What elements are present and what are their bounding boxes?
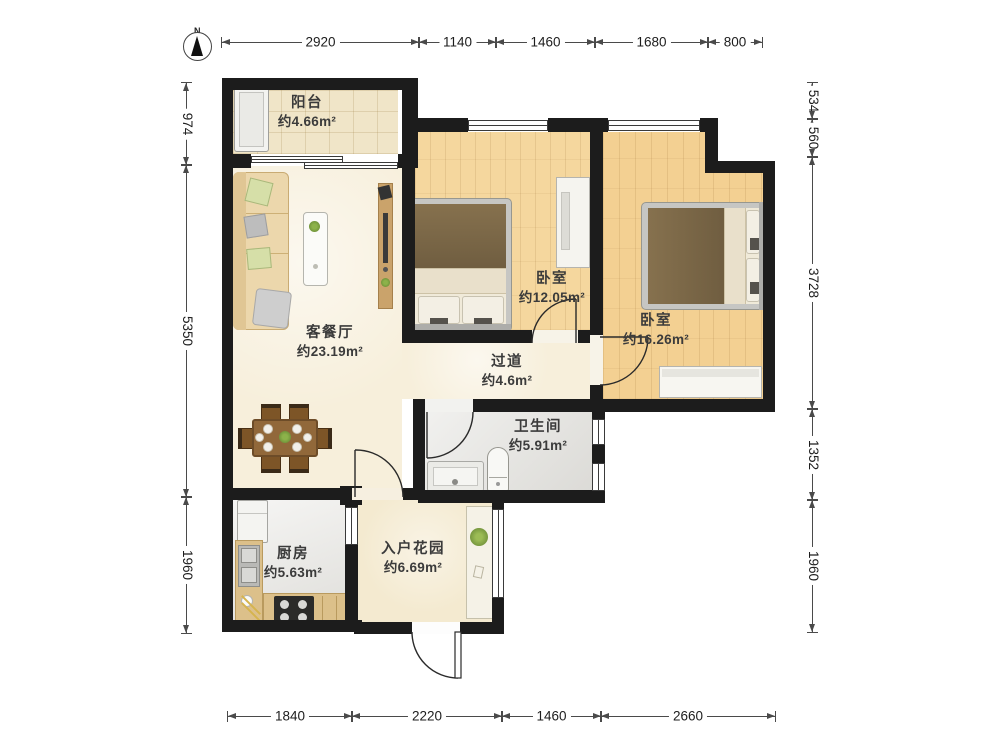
dim-top-5: 800	[708, 42, 762, 43]
dim-left-2: 5350	[186, 165, 187, 497]
dim-bottom-1: 1840	[228, 716, 352, 717]
dim-bottom-2: 2220	[352, 716, 502, 717]
dim-left-3: 1960	[186, 497, 187, 633]
dim-right-3: 3728	[812, 157, 813, 409]
dim-right-4: 1352	[812, 409, 813, 500]
room-label-bedroom1: 卧室 约12.05m²	[519, 272, 585, 304]
room-label-balcony: 阳台 约4.66m²	[278, 96, 336, 128]
dim-right-1: 534	[812, 83, 813, 119]
dim-top-4: 1680	[595, 42, 708, 43]
room-label-hallway: 过道 约4.6m²	[482, 355, 533, 387]
room-label-bathroom: 卫生间 约5.91m²	[509, 420, 567, 452]
dim-top-3: 1460	[496, 42, 595, 43]
dim-top-1: 2920	[222, 42, 419, 43]
dim-right-2: 560	[812, 119, 813, 157]
room-label-kitchen: 厨房 约5.63m²	[264, 547, 322, 579]
room-label-living: 客餐厅 约23.19m²	[297, 326, 363, 358]
dim-bottom-4: 2660	[601, 716, 775, 717]
dim-left-1: 974	[186, 83, 187, 165]
north-arrow-icon: N	[183, 28, 215, 62]
dim-right-5: 1960	[812, 500, 813, 632]
room-label-bedroom2: 卧室 约16.26m²	[623, 314, 689, 346]
dim-bottom-3: 1460	[502, 716, 601, 717]
dim-top-2: 1140	[419, 42, 496, 43]
floor-plan: 阳台 约4.66m² 客餐厅 约23.19m² 卧室 约12.05m² 卧室 约…	[0, 0, 1000, 750]
room-label-garden: 入户花园 约6.69m²	[381, 542, 445, 574]
